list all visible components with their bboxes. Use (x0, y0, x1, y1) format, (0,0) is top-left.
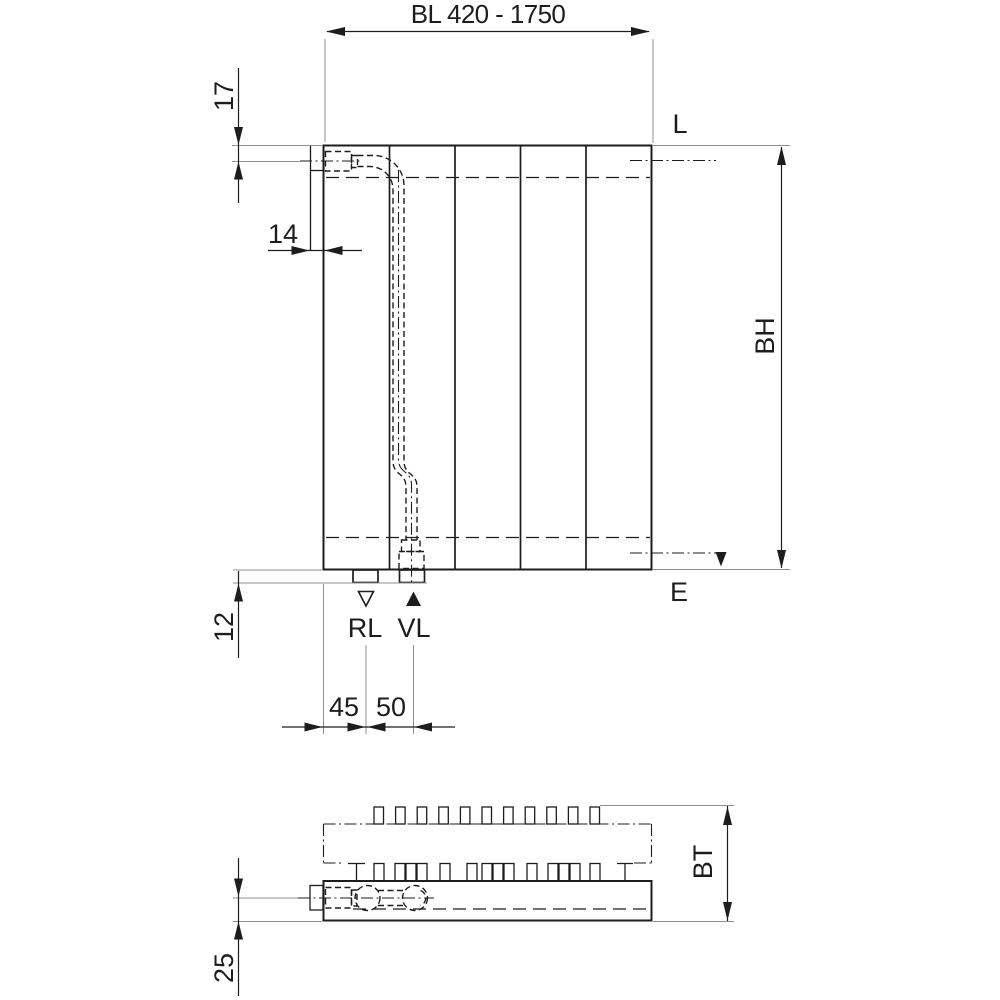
convector-fin (482, 807, 492, 824)
dim17-arrow-up-icon (234, 162, 243, 180)
convector-fin (570, 864, 580, 882)
convector-fin (590, 807, 600, 824)
convector-fin (568, 807, 578, 824)
bh-arrow-up-icon (777, 147, 786, 166)
drawing-canvas: BL 420 - 1750 (0, 0, 1000, 1000)
bh-arrow-down-icon (777, 550, 786, 569)
bh-dimension-label: BH (750, 317, 780, 355)
dim17-arrow-down-icon (234, 127, 243, 145)
flow-pipe (300, 156, 424, 584)
dim25-label: 25 (209, 953, 239, 983)
plan-view: 25 BT (209, 806, 734, 997)
convector-fin (525, 807, 535, 824)
convector-fin (439, 807, 449, 824)
dim50-arrow-right-icon (414, 723, 432, 732)
convector-fin (493, 864, 503, 882)
bl-arrow-right-icon (631, 27, 650, 36)
convector-fin (527, 864, 537, 882)
convector-fin (482, 864, 492, 882)
dim45-arrow-right-icon (348, 723, 366, 732)
convector-fin (406, 864, 416, 882)
dimension-connection-spacing: 45 50 (282, 584, 455, 734)
pipe-centerline (399, 170, 412, 583)
bl-arrow-left-icon (326, 27, 345, 36)
bt-dimension-label: BT (688, 845, 718, 880)
panel-dividers (390, 146, 587, 569)
convector-fin (395, 864, 405, 882)
convector-fin (460, 807, 470, 824)
vl-union-hidden (402, 540, 421, 552)
dim25-arrow-up-icon (234, 922, 243, 940)
bl-dimension-label: BL 420 - 1750 (411, 0, 566, 29)
dim12-label: 12 (209, 612, 239, 642)
radiator-outline (324, 146, 652, 570)
convector-fin (467, 864, 477, 882)
convector-fin (548, 864, 558, 882)
convector-fin (374, 807, 384, 824)
convector-fin (417, 864, 427, 882)
dim50-label: 50 (376, 692, 406, 722)
upper-fin-row (374, 807, 600, 824)
dimension-side-inset: 14 (268, 219, 362, 255)
convector-fin (559, 864, 569, 882)
convector-fin (440, 864, 450, 882)
supply-flow-marker-icon (406, 592, 421, 607)
convector-fin (504, 864, 514, 882)
dim45-label: 45 (329, 692, 359, 722)
convector-fin (396, 807, 406, 824)
supply-label: VL (397, 613, 430, 643)
dimension-build-height: BH L E (653, 109, 790, 607)
dim14-label: 14 (268, 219, 298, 249)
front-panel-bar (324, 881, 652, 921)
convector-fin (417, 807, 427, 824)
radiator-technical-drawing: BL 420 - 1750 (0, 0, 1000, 1000)
drain-level-marker-icon (716, 552, 727, 567)
dimension-center-offset: 25 (209, 858, 322, 996)
bt-arrow-up-icon (723, 807, 732, 826)
dimension-top-inset: 17 (209, 68, 322, 203)
return-flow-marker-icon (359, 592, 374, 607)
dim25-arrow-down-icon (234, 879, 243, 897)
vent-label: L (672, 109, 687, 139)
dim17-label: 17 (209, 81, 239, 111)
convector-fin (374, 864, 384, 882)
dim12-arrow-up-icon (234, 584, 243, 602)
connection-markers: RL VL (348, 592, 431, 644)
dim50-arrow-left-icon (368, 723, 386, 732)
convector-fin (547, 807, 557, 824)
drain-label: E (670, 577, 688, 607)
front-view: BL 420 - 1750 (209, 0, 790, 734)
return-label: RL (348, 613, 383, 643)
convector-fin (590, 864, 600, 882)
convector-fin (504, 807, 513, 824)
rl-connection-stub (353, 570, 378, 583)
dimension-overall-length: BL 420 - 1750 (325, 0, 653, 143)
dim45-arrow-left-icon (305, 723, 323, 732)
dimension-bottom-inset: 12 (209, 570, 427, 658)
rear-convector-phantom-outline (324, 824, 652, 863)
dim14-arrow-left-icon (325, 246, 343, 255)
lower-fin-row (374, 864, 600, 882)
bt-arrow-down-icon (723, 902, 732, 921)
